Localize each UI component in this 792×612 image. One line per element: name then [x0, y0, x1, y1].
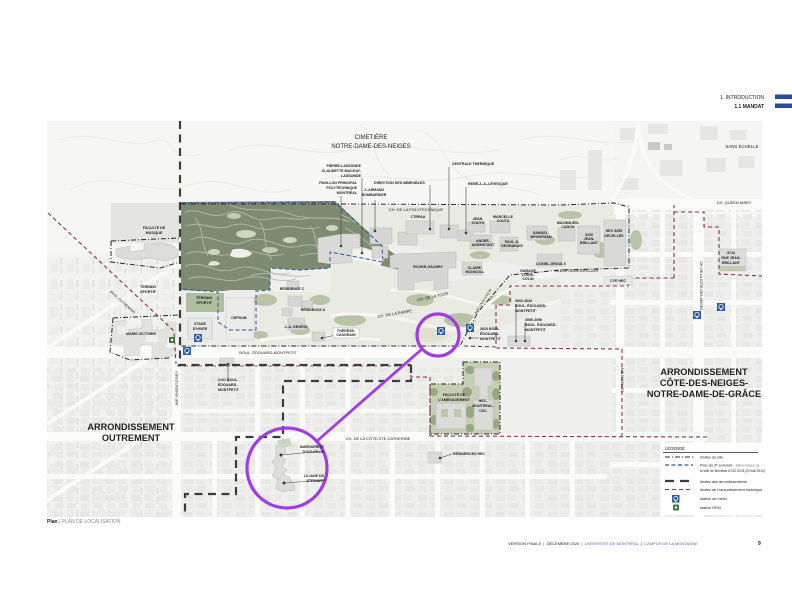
svg-text:PIERRE-LASSONDE: PIERRE-LASSONDE: [326, 164, 361, 168]
svg-text:2101 BOUL.: 2101 BOUL.: [218, 378, 238, 382]
svg-text:CSC: CSC: [479, 409, 487, 413]
svg-text:AVE DECELLES: AVE DECELLES: [620, 367, 624, 393]
svg-text:ALLÉE JEAN-BRILLANT: ALLÉE JEAN-BRILLANT: [555, 268, 600, 273]
svg-text:BOUL. ÉDOUARD-MONTPETIT: BOUL. ÉDOUARD-MONTPETIT: [239, 350, 297, 355]
svg-text:BOUL. ÉDOUARD-: BOUL. ÉDOUARD-: [515, 303, 547, 308]
svg-text:MUSIQUE: MUSIQUE: [146, 231, 163, 235]
svg-text:ÉDOUARD-: ÉDOUARD-: [218, 382, 238, 387]
svg-text:CH. QUEEN MARY: CH. QUEEN MARY: [717, 200, 752, 205]
svg-text:limites de l'arrondissement hi: limites de l'arrondissement historique: [700, 488, 762, 492]
svg-text:la Ville de Montréal CG10 0203: la Ville de Montréal CG10 0203 (20 mai 2…: [700, 469, 765, 473]
svg-text:limites des arrondissements: limites des arrondissements: [700, 480, 747, 484]
svg-text:BRILLANT: BRILLANT: [580, 241, 599, 245]
svg-text:MONTPETIT: MONTPETIT: [218, 388, 240, 392]
svg-text:J.-ARMAND: J.-ARMAND: [364, 188, 385, 192]
svg-text:VERSION FINALE | DÉCEMBRE 20: VERSION FINALE | DÉCEMBRE 2020 | UNIVERS…: [508, 541, 698, 546]
svg-text:9: 9: [758, 541, 761, 547]
svg-text:LASSONDE: LASSONDE: [341, 174, 362, 178]
svg-text:BOMBARDIER: BOMBARDIER: [362, 193, 387, 197]
svg-text:DECELLES: DECELLES: [604, 234, 624, 238]
svg-text:ROGER-GAUDRY: ROGER-GAUDRY: [413, 265, 443, 269]
svg-text:RUE JEAN-: RUE JEAN-: [721, 256, 741, 260]
svg-text:CEPSUM: CEPSUM: [231, 316, 246, 320]
svg-text:CENTRALE THERMIQUE: CENTRALE THERMIQUE: [452, 162, 495, 166]
svg-text:RÉSIDENCES HEC: RÉSIDENCES HEC: [453, 451, 485, 456]
svg-text:MARIE-VICTORIN: MARIE-VICTORIN: [126, 332, 156, 336]
svg-text:DIRECTION DES IMMEUBLES: DIRECTION DES IMMEUBLES: [374, 181, 425, 185]
svg-text:HEC 5255: HEC 5255: [606, 229, 623, 233]
svg-text:Plan | PLAN DE LOCALISATION: Plan | PLAN DE LOCALISATION: [47, 519, 121, 525]
svg-text:Parc du 3ᵉ sommet - Bail en fa: Parc du 3ᵉ sommet - Bail en faveur de: [700, 464, 760, 468]
svg-text:NOTRE-DAME-DES-NEIGES: NOTRE-DAME-DES-NEIGES: [331, 144, 410, 150]
svg-text:MONTPETIT: MONTPETIT: [480, 337, 502, 341]
svg-text:COUTU: COUTU: [472, 221, 485, 225]
svg-text:SPORTIF: SPORTIF: [140, 290, 156, 294]
svg-text:CH. DE LA CÔTE-DES-NEIGES: CH. DE LA CÔTE-DES-NEIGES: [699, 262, 704, 312]
svg-text:CYE HEC: CYE HEC: [610, 279, 626, 283]
svg-text:L'AMÉNAGEMENT: L'AMÉNAGEMENT: [438, 397, 470, 402]
svg-text:TERRAIN: TERRAIN: [196, 296, 212, 300]
svg-text:J.-A. DESÈVE: J.-A. DESÈVE: [284, 324, 308, 329]
svg-text:ÉDOUARD-: ÉDOUARD-: [480, 331, 500, 336]
svg-text:station REM: station REM: [700, 506, 721, 510]
svg-text:HEC-: HEC-: [479, 399, 489, 403]
svg-text:CÔTE-DES-NEIGES-: CÔTE-DES-NEIGES-: [660, 377, 748, 388]
svg-text:AISENSTADT: AISENSTADT: [472, 243, 495, 247]
svg-text:BRILLANT: BRILLANT: [722, 261, 741, 265]
svg-text:PAVILLON PRINCIPAL: PAVILLON PRINCIPAL: [319, 181, 358, 185]
svg-text:SANS ÉCHELLE: SANS ÉCHELLE: [725, 144, 758, 149]
svg-text:MCNICOLL: MCNICOLL: [466, 270, 486, 274]
svg-text:ARRONDISSEMENT: ARRONDISSEMENT: [660, 367, 748, 377]
svg-text:1. INTRODUCTION: 1. INTRODUCTION: [720, 95, 764, 101]
svg-text:OUTREMENT: OUTREMENT: [102, 433, 161, 443]
svg-text:DESMARAIS: DESMARAIS: [501, 244, 523, 248]
svg-text:D'YOUVILLE: D'YOUVILLE: [303, 450, 325, 454]
svg-text:STADE: STADE: [194, 322, 207, 326]
svg-text:NOTRE-DAME-DE-GRÂCE: NOTRE-DAME-DE-GRÂCE: [647, 388, 761, 399]
svg-text:CTRPAA: CTRPAA: [411, 215, 426, 219]
svg-text:SPORTIF: SPORTIF: [196, 301, 212, 305]
svg-text:BRONFMAN: BRONFMAN: [531, 235, 552, 239]
svg-text:MONTPETIT: MONTPETIT: [525, 328, 547, 332]
svg-text:POLYTECHNIQUE: POLYTECHNIQUE: [326, 186, 357, 190]
svg-text:1.1 MANDAT: 1.1 MANDAT: [734, 104, 764, 110]
svg-text:RÉSIDENCE C: RÉSIDENCE C: [280, 286, 305, 291]
svg-text:MONTPETIT: MONTPETIT: [515, 309, 537, 313]
svg-text:COUTU: COUTU: [497, 219, 510, 223]
svg-text:MONTRÉAL-: MONTRÉAL-: [472, 403, 494, 408]
svg-text:ARRONDISSEMENT: ARRONDISSEMENT: [87, 422, 175, 432]
svg-text:COLIN: COLIN: [522, 277, 534, 281]
svg-text:CH. DE LA POLYTECHNIQUE: CH. DE LA POLYTECHNIQUE: [389, 207, 444, 212]
svg-text:BOUL. ÉDOUARD-: BOUL. ÉDOUARD-: [525, 322, 557, 327]
svg-text:CLAUDETTE MACKAY-: CLAUDETTE MACKAY-: [322, 169, 362, 173]
svg-text:3002-3034: 3002-3034: [515, 299, 532, 303]
svg-text:RENÉ-J.-A.-LÉVESQUE: RENÉ-J.-A.-LÉVESQUE: [468, 181, 508, 186]
svg-text:3744: 3744: [727, 251, 735, 255]
svg-text:2910 BOUL.: 2910 BOUL.: [480, 327, 500, 331]
svg-text:MONTRÉAL: MONTRÉAL: [337, 190, 358, 195]
svg-text:RÉSIDENCE A: RÉSIDENCE A: [301, 307, 326, 312]
svg-text:FACULTÉ DE: FACULTÉ DE: [443, 392, 466, 397]
svg-text:3050-3090: 3050-3090: [525, 318, 542, 322]
svg-text:limites du site: limites du site: [700, 456, 723, 460]
svg-text:AVE VINCENT-D'INDY: AVE VINCENT-D'INDY: [175, 370, 179, 405]
svg-text:LILIANE DE: LILIANE DE: [304, 474, 325, 478]
svg-text:LÉGENDE: LÉGENDE: [665, 446, 685, 451]
svg-text:MARGUERITE: MARGUERITE: [300, 445, 325, 449]
svg-text:STEWART: STEWART: [306, 479, 324, 483]
svg-text:FACULTÉ DE: FACULTÉ DE: [143, 225, 166, 230]
svg-text:D'HIVER: D'HIVER: [193, 327, 208, 331]
svg-text:CASGRAIN: CASGRAIN: [336, 333, 356, 337]
svg-text:station de métro: station de métro: [700, 497, 727, 501]
svg-text:LIONEL-GROULX: LIONEL-GROULX: [536, 262, 566, 266]
svg-text:CARON: CARON: [561, 225, 575, 229]
svg-text:CIMETIÈRE: CIMETIÈRE: [355, 134, 388, 141]
svg-text:CH. DE LA CÔTE-STE-CATHERINE: CH. DE LA CÔTE-STE-CATHERINE: [346, 436, 411, 441]
svg-text:TERRAIN: TERRAIN: [140, 285, 156, 289]
